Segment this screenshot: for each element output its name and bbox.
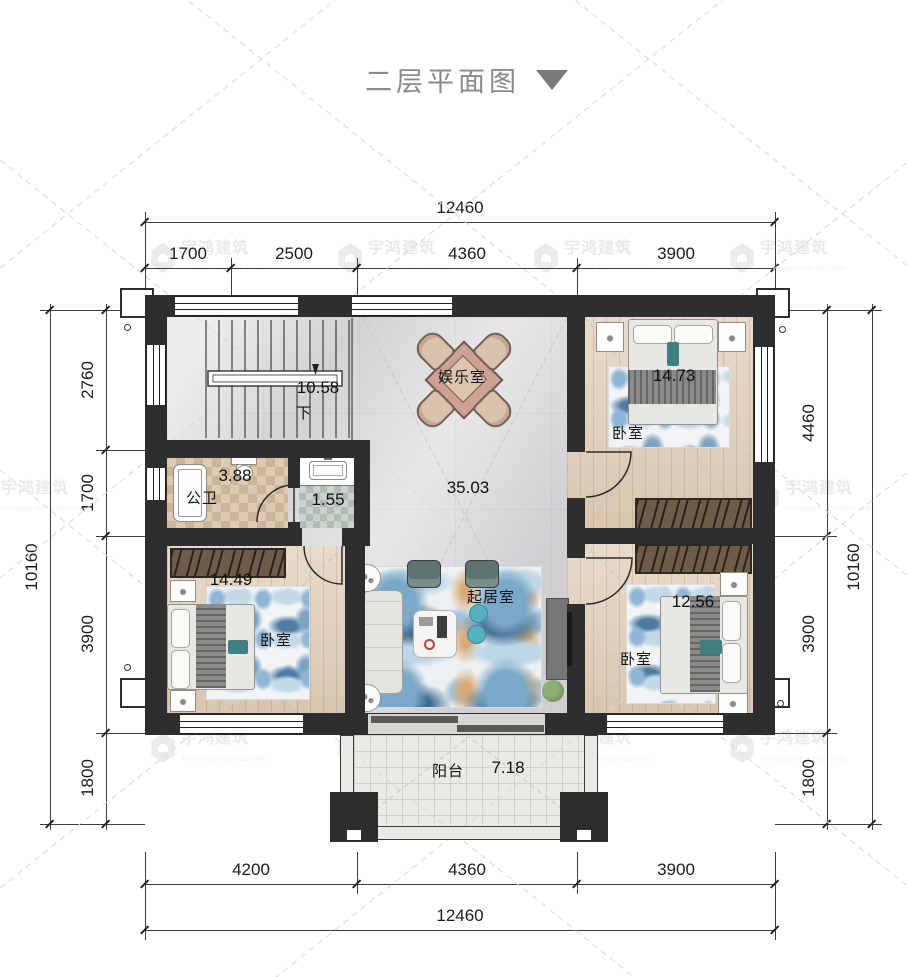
window	[146, 468, 166, 500]
dim-value: 4200	[221, 860, 281, 880]
watermark-logo-icon	[150, 733, 176, 763]
watermark-name: 宇鸿建筑	[760, 240, 828, 257]
window	[607, 714, 723, 734]
extension-line	[775, 212, 776, 295]
room-area: 3.88	[212, 466, 258, 486]
extension-line	[775, 310, 882, 311]
axis-marker	[777, 700, 784, 707]
dim-value: 4360	[437, 860, 497, 880]
dim-line	[872, 304, 873, 830]
table-decor	[419, 617, 433, 626]
watermark-name: 宇鸿建筑	[1, 480, 69, 497]
stairs-down-label: 下	[293, 402, 315, 423]
dim-line	[145, 930, 775, 931]
room-label-living: 起居室	[458, 586, 524, 607]
bed-runner	[228, 640, 248, 654]
pillow	[171, 609, 190, 648]
window	[754, 347, 774, 462]
room-label-bedroom: 卧室	[258, 629, 294, 650]
pillow	[171, 650, 190, 689]
dim-value: 1700	[78, 463, 98, 523]
sliding-door-panel	[457, 725, 544, 732]
watermark-subtitle: YU HONG ARCHITECTURE	[1, 507, 87, 513]
nightstand	[596, 322, 624, 352]
blanket	[196, 604, 226, 688]
pillow	[722, 643, 741, 683]
interior-wall	[167, 440, 370, 458]
bookshelf	[635, 498, 752, 532]
watermark-logo-icon	[729, 733, 755, 763]
dim-value: 4360	[437, 244, 497, 264]
room-area: 1.55	[300, 490, 356, 510]
dim-line	[106, 304, 107, 830]
room-label-entertainment: 娱乐室	[429, 366, 495, 387]
extension-line	[145, 212, 146, 295]
watermark: 宇鸿建筑 YU HONG ARCHITECTURE	[533, 240, 643, 276]
page-title: 二层平面图	[365, 60, 568, 99]
nightstand	[718, 322, 746, 352]
dim-line	[827, 304, 828, 830]
extension-line	[40, 824, 145, 825]
pillar-notch	[577, 830, 591, 840]
tv-console	[546, 598, 569, 680]
room-area: 14.49	[203, 570, 259, 590]
dim-value: 12460	[425, 906, 495, 926]
bed-runner	[667, 342, 679, 366]
interior-wall	[345, 528, 365, 713]
watermark-name: 宇鸿建筑	[368, 240, 436, 257]
pillow	[722, 601, 741, 641]
extension-line	[357, 852, 358, 894]
pillow	[674, 325, 713, 344]
dim-line	[145, 222, 775, 223]
watermark-subtitle: YU HONG ARCHITECTURE	[181, 757, 267, 763]
dim-value: 4460	[799, 393, 819, 453]
nightstand	[718, 692, 748, 714]
room-label-balcony: 阳台	[426, 760, 470, 781]
room-label-bathroom: 公卫	[184, 487, 220, 508]
pouf	[467, 625, 486, 644]
sofa	[363, 590, 403, 694]
dim-line	[145, 884, 775, 885]
floor-plan-sheet: 宇鸿建筑 YU HONG ARCHITECTURE 宇鸿建筑 YU HONG A…	[0, 0, 910, 977]
room-label-bedroom: 卧室	[618, 648, 654, 669]
dim-value: 3900	[799, 604, 819, 664]
dim-value: 2760	[78, 350, 98, 410]
stairs-area: 10.58	[294, 378, 342, 398]
window	[146, 345, 166, 405]
sliding-door-panel	[371, 716, 458, 723]
axis-marker	[124, 324, 131, 331]
armchair	[465, 560, 499, 588]
pillow	[633, 325, 672, 344]
dim-value: 12460	[425, 198, 495, 218]
axis-marker	[124, 664, 131, 671]
interior-wall	[567, 317, 585, 452]
dim-value: 2500	[264, 244, 324, 264]
watermark-name: 宇鸿建筑	[785, 480, 853, 497]
watermark: 宇鸿建筑 YU HONG ARCHITECTURE	[0, 480, 80, 516]
armchair	[407, 560, 441, 588]
room-area: 7.18	[485, 758, 531, 778]
nightstand	[170, 580, 196, 602]
window	[175, 296, 298, 316]
extension-line	[577, 852, 578, 894]
dim-value: 1700	[158, 244, 218, 264]
down-triangle-icon	[536, 70, 568, 90]
dim-value: 3900	[646, 860, 706, 880]
sink-basin	[309, 461, 347, 480]
watermark-subtitle: YU HONG ARCHITECTURE	[785, 507, 871, 513]
watermark: 宇鸿建筑 YU HONG ARCHITECTURE	[729, 240, 839, 276]
dim-value: 1800	[799, 748, 819, 808]
dim-value: 3900	[78, 604, 98, 664]
dim-value: 10160	[844, 537, 864, 597]
interior-wall	[567, 528, 775, 544]
room-area: 35.03	[440, 478, 496, 498]
window	[180, 714, 303, 734]
balcony-floor	[354, 735, 584, 831]
extension-line	[775, 536, 837, 537]
watermark-name: 宇鸿建筑	[564, 240, 632, 257]
bed-runner	[700, 640, 722, 654]
extension-line	[775, 733, 837, 734]
interior-wall	[145, 528, 302, 546]
bookshelf	[635, 544, 752, 574]
dim-line	[145, 268, 775, 269]
plant	[542, 680, 564, 702]
table-decor	[437, 616, 447, 638]
dim-value: 10160	[22, 537, 42, 597]
interior-wall	[288, 458, 300, 488]
nightstand	[170, 690, 196, 712]
room-area: 14.73	[648, 366, 700, 386]
room-label-bedroom: 卧室	[610, 422, 646, 443]
room-area: 12.56	[664, 592, 722, 612]
pillar-notch	[347, 830, 361, 840]
watermark: 宇鸿建筑 YU HONG ARCHITECTURE	[150, 730, 260, 766]
window	[352, 296, 452, 316]
page-title-text: 二层平面图	[365, 60, 520, 99]
table-decor	[424, 639, 435, 650]
dim-line	[50, 304, 51, 830]
axis-marker	[779, 326, 786, 333]
tv	[567, 612, 572, 666]
extension-line	[775, 824, 882, 825]
dim-value: 1800	[78, 748, 98, 808]
nightstand	[720, 572, 748, 596]
dim-value: 3900	[646, 244, 706, 264]
